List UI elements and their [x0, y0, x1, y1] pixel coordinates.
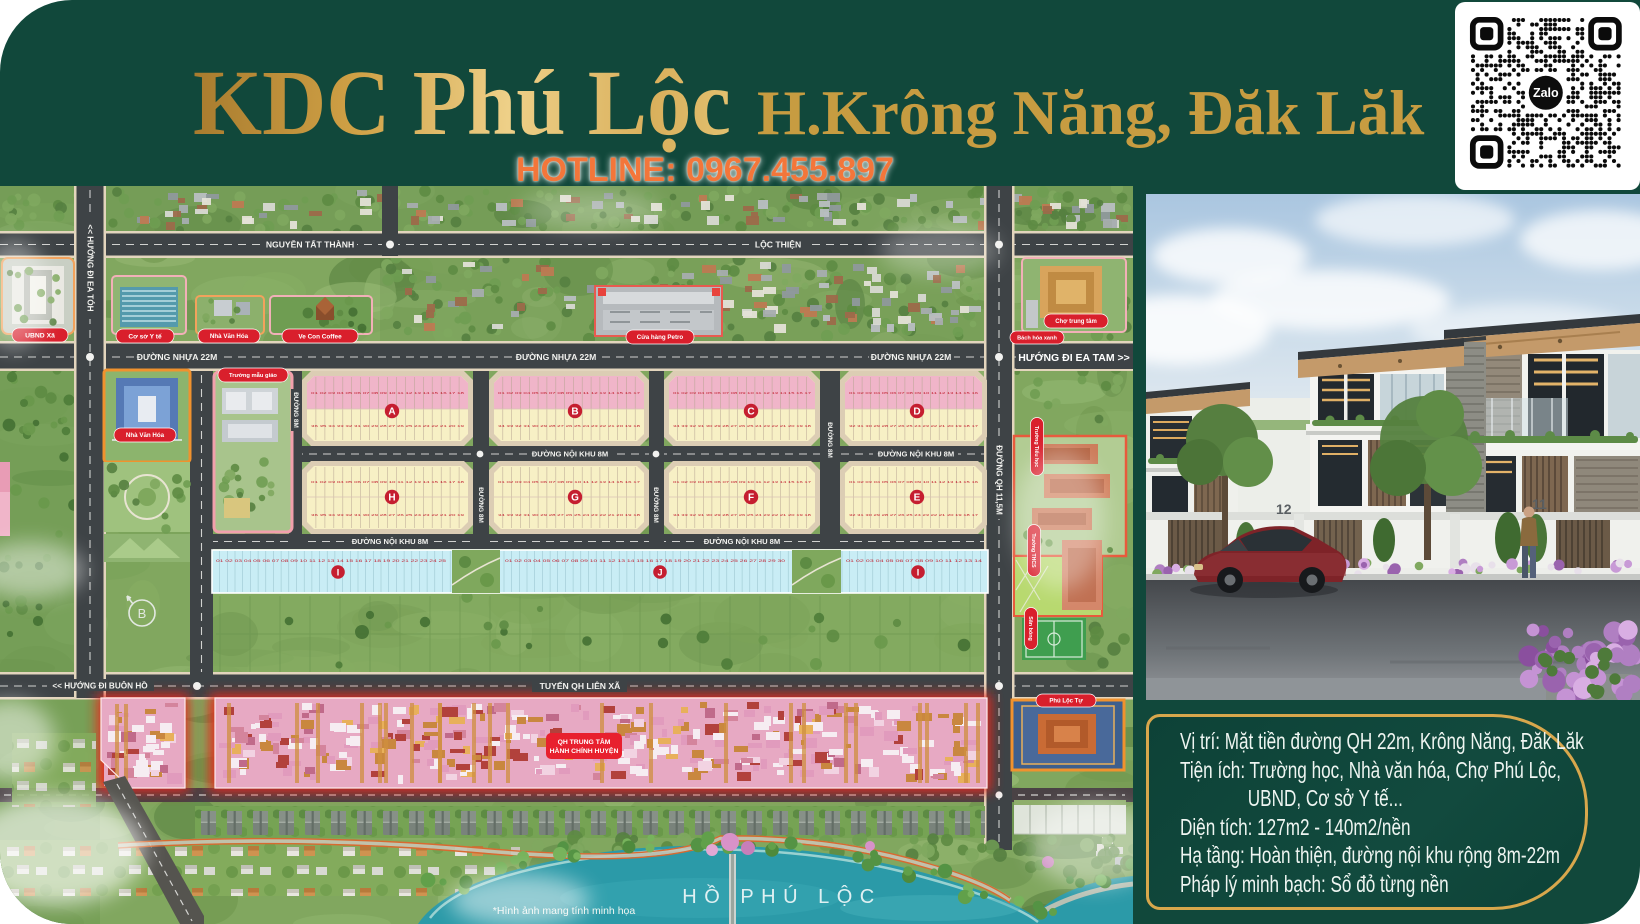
svg-text:HỒ PHÚ LỘC: HỒ PHÚ LỘC — [682, 884, 881, 908]
svg-text:Cửa hàng Petro: Cửa hàng Petro — [637, 334, 684, 341]
svg-text:01 02 03 04 05 06 07 08 09 10: 01 02 03 04 05 06 07 08 09 10 11 12 13 1… — [849, 391, 979, 395]
svg-text:A: A — [388, 407, 395, 418]
svg-text:01 02 03 04 05 06 07 08 09 10: 01 02 03 04 05 06 07 08 09 10 11 12 13 1… — [498, 391, 641, 395]
svg-text:Ve Con Coffee: Ve Con Coffee — [298, 333, 342, 340]
svg-text:01 02 03 04 05 06 07 08 09 10: 01 02 03 04 05 06 07 08 09 10 11 12 13 1… — [846, 559, 982, 563]
svg-text:<< HƯỚNG ĐI EA TÓH: << HƯỚNG ĐI EA TÓH — [85, 224, 96, 311]
svg-text:F: F — [748, 493, 754, 504]
svg-text:HƯỚNG ĐI EA TAM >>: HƯỚNG ĐI EA TAM >> — [1018, 351, 1130, 364]
svg-text:32 31 30 29 28 27 26 25 24 23: 32 31 30 29 28 27 26 25 24 23 22 21 20 1… — [849, 424, 979, 428]
svg-text:34 33 32 31 30 29 28 27 26 25: 34 33 32 31 30 29 28 27 26 25 24 23 22 2… — [498, 424, 641, 428]
svg-text:01 02 03 04 05 06 07 08 09 10: 01 02 03 04 05 06 07 08 09 10 11 12 13 1… — [849, 480, 979, 484]
svg-text:34 33 32 31 30 29 28 27 26 25: 34 33 32 31 30 29 28 27 26 25 24 23 22 2… — [673, 513, 812, 517]
svg-text:B: B — [138, 606, 147, 621]
svg-text:Nhà Văn Hóa: Nhà Văn Hóa — [126, 432, 165, 439]
svg-text:01 02 03 04 05 06 07 08 09 10: 01 02 03 04 05 06 07 08 09 10 11 12 13 1… — [505, 559, 785, 563]
svg-text:11: 11 — [1532, 496, 1547, 512]
svg-text:Sân bóng: Sân bóng — [1027, 616, 1033, 641]
svg-text:Nhà Văn Hóa: Nhà Văn Hóa — [210, 333, 249, 340]
svg-text:Chợ trung tâm: Chợ trung tâm — [1055, 319, 1097, 325]
svg-text:01 02 03 04 05 06 07 08 09 10: 01 02 03 04 05 06 07 08 09 10 11 12 13 1… — [311, 391, 465, 395]
svg-text:HÀNH CHÍNH HUYỆN: HÀNH CHÍNH HUYỆN — [550, 746, 619, 755]
svg-text:Phú Lộc Tự: Phú Lộc Tự — [1049, 699, 1083, 705]
svg-text:ĐƯỜNG NỘI KHU 8M: ĐƯỜNG NỘI KHU 8M — [532, 450, 608, 459]
svg-text:C: C — [747, 407, 754, 418]
svg-text:Trường mẫu giáo: Trường mẫu giáo — [229, 372, 277, 379]
svg-text:ĐƯỜNG NỘI KHU 8M: ĐƯỜNG NỘI KHU 8M — [352, 537, 428, 546]
svg-text:NGUYỄN TẤT THÀNH: NGUYỄN TẤT THÀNH — [266, 238, 354, 249]
svg-text:36 35 34 33 32 31 30 29 28 27: 36 35 34 33 32 31 30 29 28 27 26 25 24 2… — [311, 513, 465, 517]
svg-text:TUYẾN QH LIÊN XÃ: TUYẾN QH LIÊN XÃ — [540, 680, 621, 691]
svg-text:ĐƯỜNG 8M: ĐƯỜNG 8M — [652, 487, 661, 523]
svg-text:34 33 32 31 30 29 28 27 26 25: 34 33 32 31 30 29 28 27 26 25 24 23 22 2… — [498, 513, 641, 517]
svg-text:G: G — [571, 493, 579, 504]
svg-text:ĐƯỜNG 8M: ĐƯỜNG 8M — [292, 392, 301, 428]
svg-text:01 02 03 04 05 06 07 08 09 10: 01 02 03 04 05 06 07 08 09 10 11 12 13 1… — [311, 480, 465, 484]
svg-text:36 35 34 33 32 31 30 29 28 27: 36 35 34 33 32 31 30 29 28 27 26 25 24 2… — [311, 424, 465, 428]
svg-text:12: 12 — [1276, 501, 1292, 517]
svg-text:ĐƯỜNG NHỰA 22M: ĐƯỜNG NHỰA 22M — [137, 351, 217, 362]
svg-text:Cơ sở Y tế: Cơ sở Y tế — [128, 332, 162, 340]
svg-text:01 02 03 04 05 06 07 08 09 10: 01 02 03 04 05 06 07 08 09 10 11 12 13 1… — [673, 391, 812, 395]
svg-text:ĐƯỜNG 8M: ĐƯỜNG 8M — [826, 422, 835, 458]
svg-text:ĐƯỜNG NHỰA 22M: ĐƯỜNG NHỰA 22M — [516, 351, 596, 362]
svg-text:ĐƯỜNG NHỰA 22M: ĐƯỜNG NHỰA 22M — [871, 351, 951, 362]
svg-text:QH TRUNG TÂM: QH TRUNG TÂM — [558, 737, 611, 746]
svg-text:01 02 03 04 05 06 07 08 09 10: 01 02 03 04 05 06 07 08 09 10 11 12 13 1… — [498, 480, 641, 484]
svg-text:ĐƯỜNG 8M: ĐƯỜNG 8M — [477, 487, 486, 523]
svg-text:ĐƯỜNG NỘI KHU 8M: ĐƯỜNG NỘI KHU 8M — [704, 537, 780, 546]
svg-text:H: H — [388, 493, 395, 504]
svg-text:LỘC THIỆN: LỘC THIỆN — [755, 238, 801, 249]
svg-text:ĐƯỜNG QH 11,5M: ĐƯỜNG QH 11,5M — [994, 445, 1003, 515]
svg-text:01 02 03 04 05 06 07 08 09 10: 01 02 03 04 05 06 07 08 09 10 11 12 13 1… — [673, 480, 812, 484]
svg-text:32 31 30 29 28 27 26 25 24 23: 32 31 30 29 28 27 26 25 24 23 22 21 20 1… — [849, 513, 979, 517]
svg-text:J: J — [657, 567, 662, 577]
svg-text:01 02 03 04 05 06 07 08 09 10: 01 02 03 04 05 06 07 08 09 10 11 12 13 1… — [216, 559, 446, 563]
svg-text:B: B — [571, 407, 578, 418]
svg-text:Bách hóa xanh: Bách hóa xanh — [1017, 336, 1057, 342]
svg-text:ĐƯỜNG NỘI KHU 8M: ĐƯỜNG NỘI KHU 8M — [878, 450, 954, 459]
svg-text:I: I — [917, 567, 920, 577]
svg-text:D: D — [913, 407, 920, 418]
svg-text:<< HƯỚNG ĐI BUÔN HỒ: << HƯỚNG ĐI BUÔN HỒ — [52, 680, 148, 691]
svg-text:I: I — [337, 567, 340, 577]
svg-text:34 33 32 31 30 29 28 27 26 25: 34 33 32 31 30 29 28 27 26 25 24 23 22 2… — [673, 424, 812, 428]
svg-text:E: E — [914, 493, 921, 504]
svg-text:Zalo: Zalo — [1533, 86, 1559, 100]
